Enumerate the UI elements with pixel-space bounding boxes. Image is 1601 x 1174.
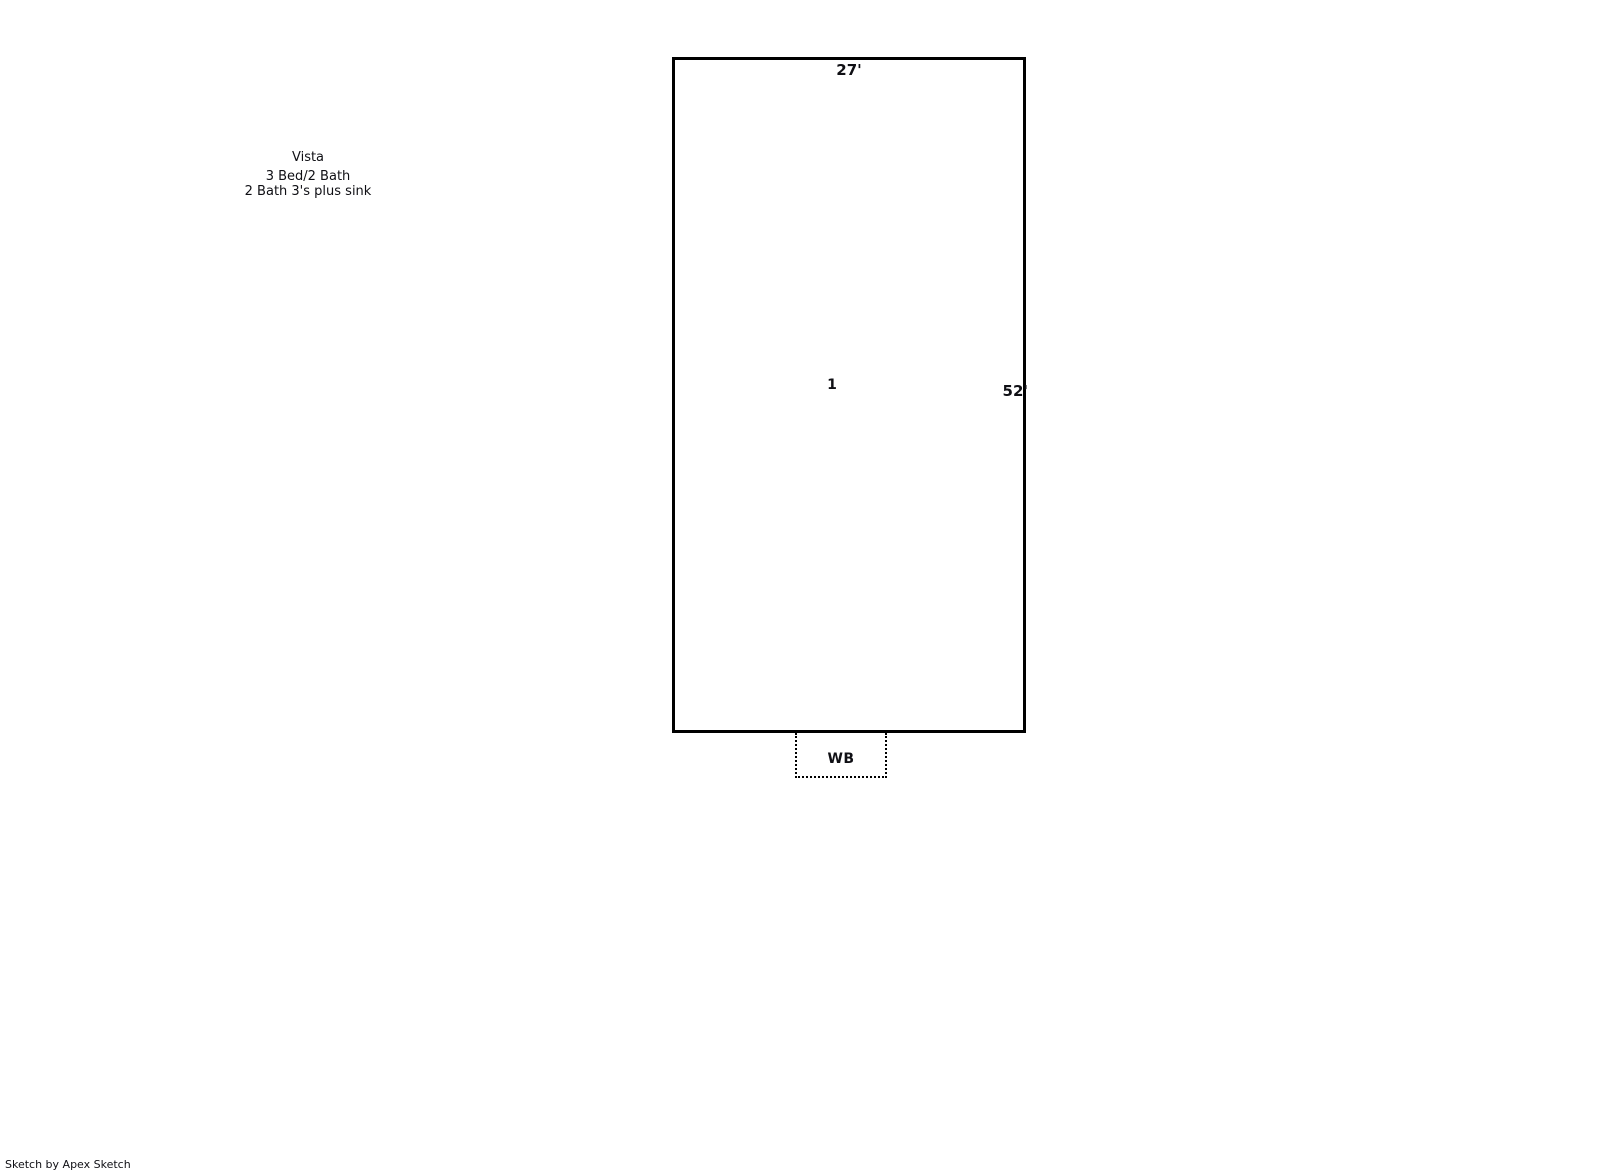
wb-attachment-box: WB <box>795 733 887 778</box>
room-area-number: 1 <box>820 377 844 393</box>
floorplan-room-outline: 27' <box>672 57 1026 733</box>
dimension-label-right: 52' <box>980 382 1028 400</box>
annotation-bath-detail: 2 Bath 3's plus sink <box>180 184 436 200</box>
wb-attachment-label: WB <box>827 751 854 767</box>
dimension-label-top: 27' <box>675 61 1023 79</box>
sketch-credit-text: Sketch by Apex Sketch <box>5 1158 131 1171</box>
annotation-model-name: Vista <box>180 150 436 166</box>
annotation-bed-bath: 3 Bed/2 Bath <box>180 169 436 185</box>
sketch-canvas: Vista 3 Bed/2 Bath 2 Bath 3's plus sink … <box>0 0 1601 1174</box>
annotation-block: Vista 3 Bed/2 Bath 2 Bath 3's plus sink <box>180 150 436 200</box>
